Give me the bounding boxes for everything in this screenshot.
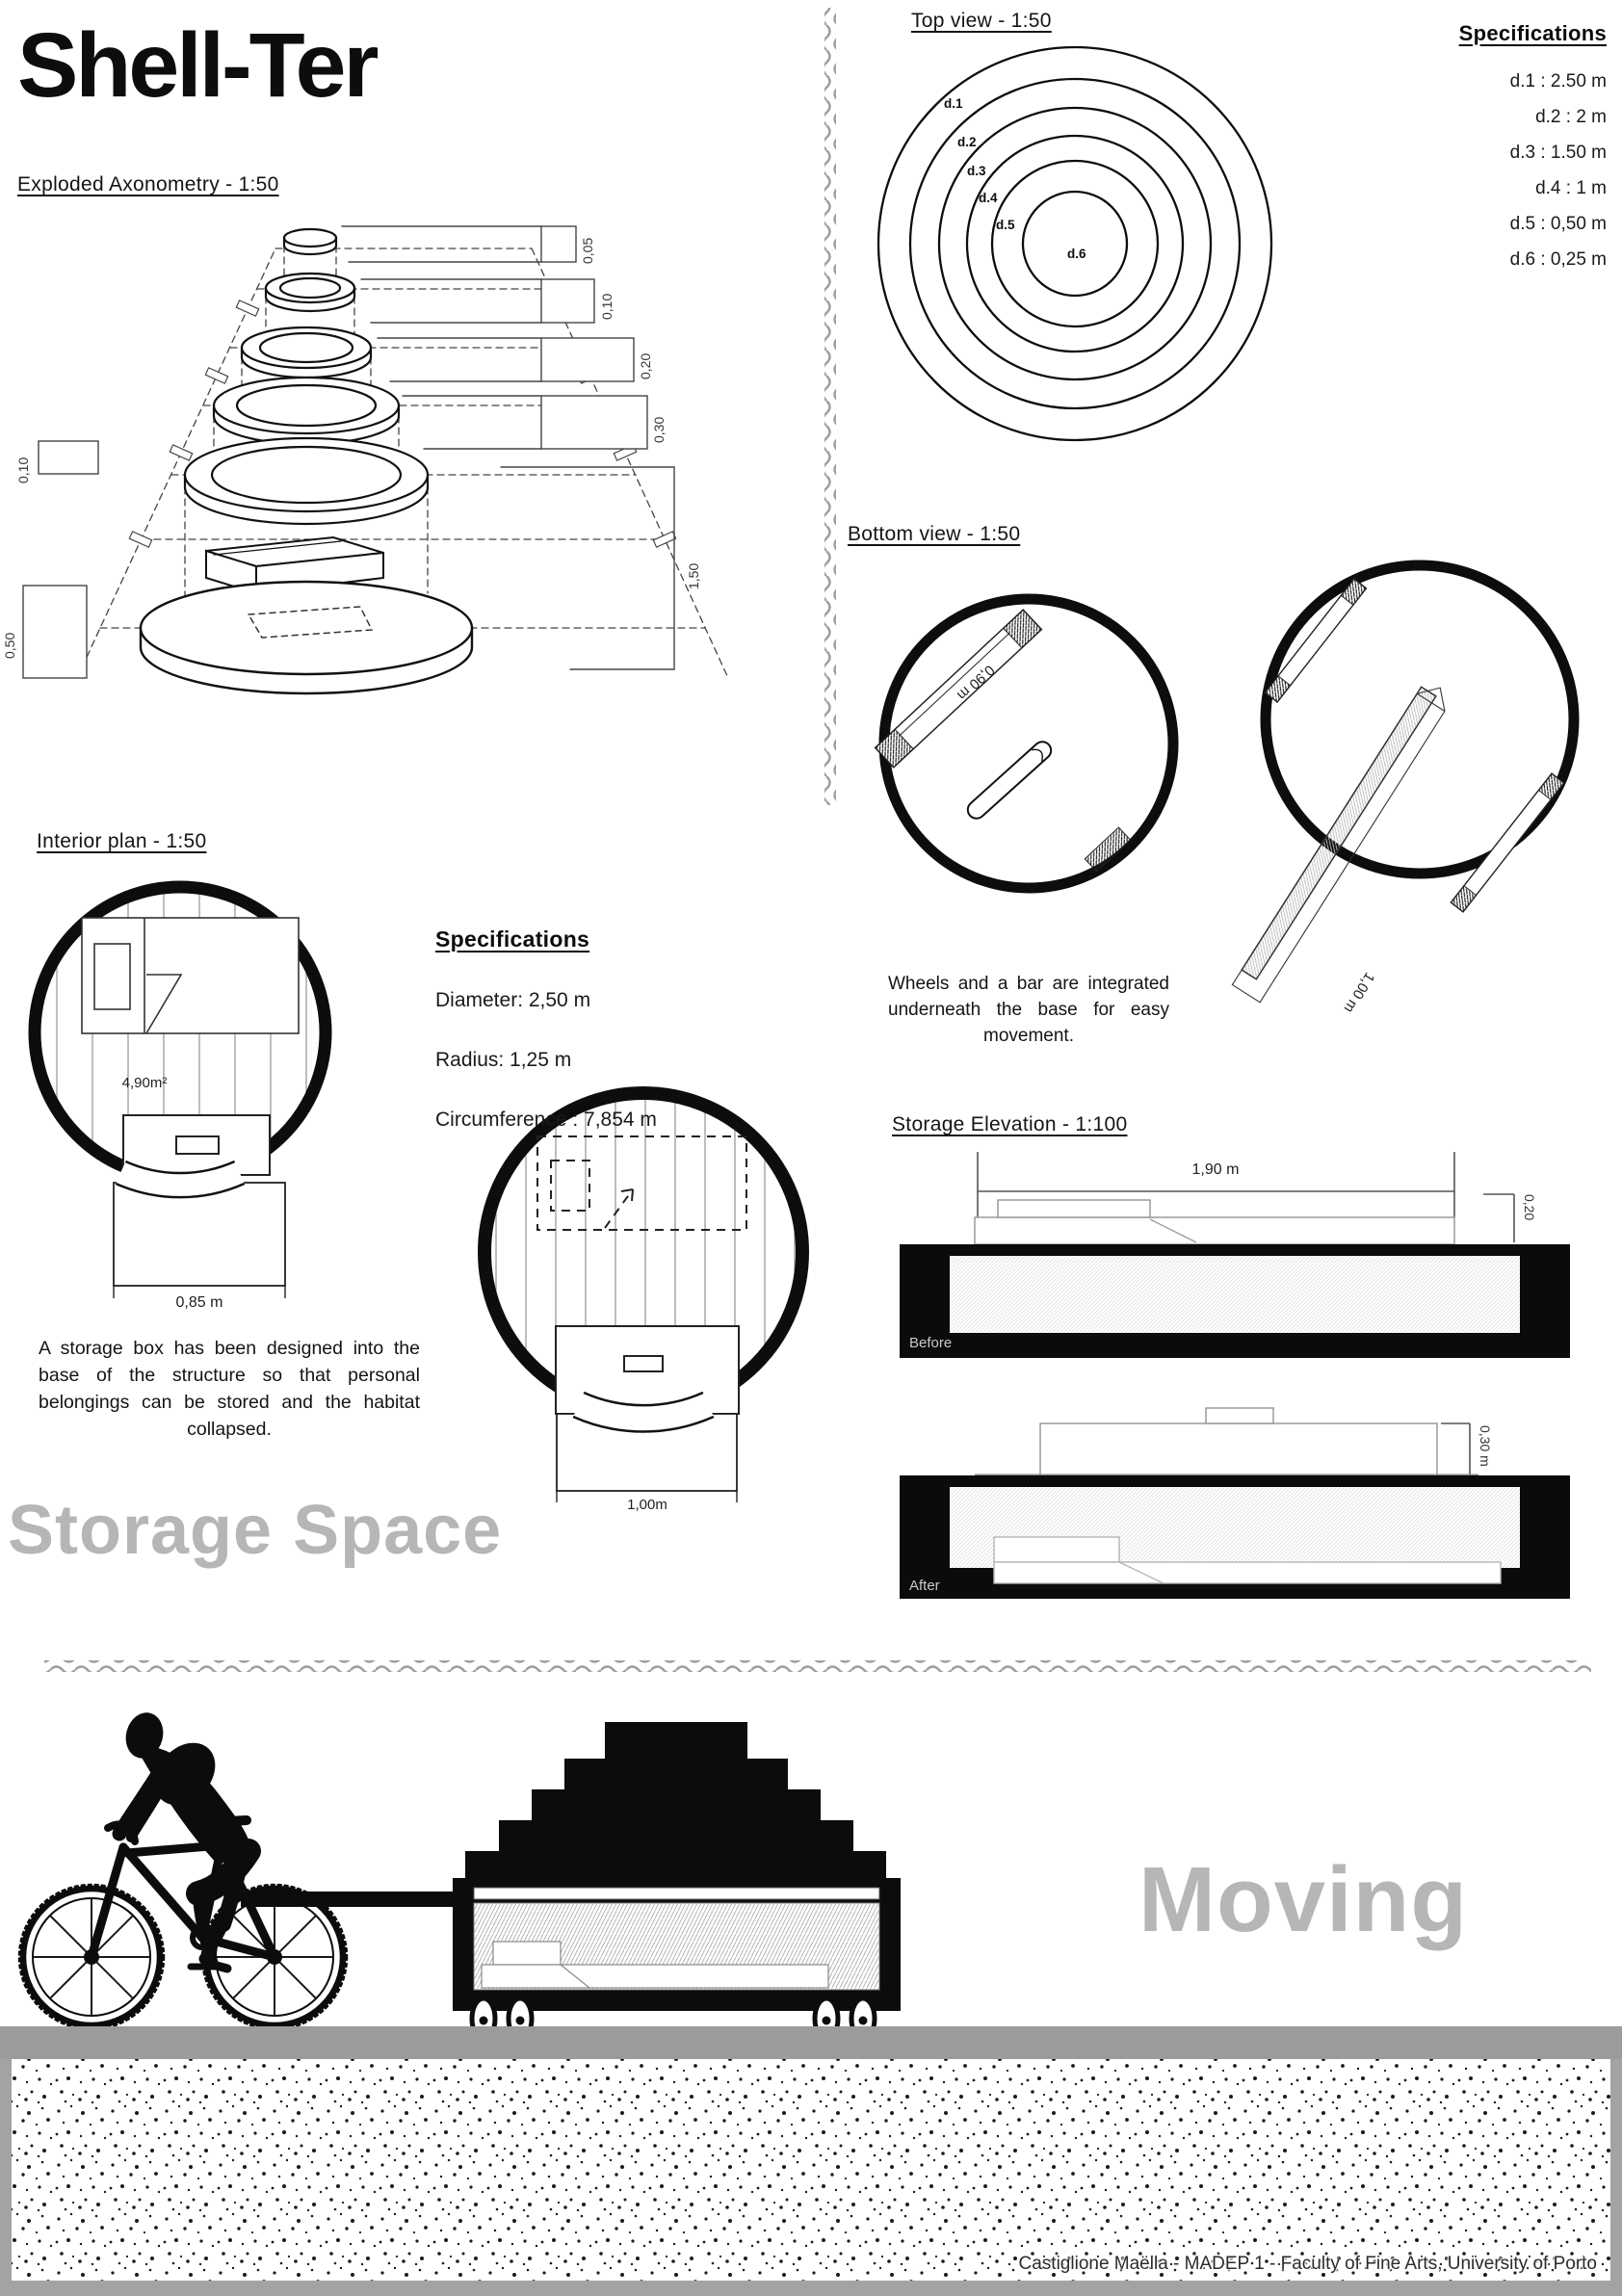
axo-dim-left-0-10: 0,10 xyxy=(15,457,31,483)
ring-label-d3: d.3 xyxy=(967,164,986,178)
axo-dim-0-05: 0,05 xyxy=(580,238,595,264)
footer-credit: Castiglione Maëlla - MADEP 1 - Faculty o… xyxy=(1019,2254,1597,2275)
axo-dim-0-20: 0,20 xyxy=(638,353,653,379)
axo-dim-left-0-50: 0,50 xyxy=(2,633,17,659)
ring-label-d2: d.2 xyxy=(957,135,977,149)
ring-label-d5: d.5 xyxy=(996,218,1015,232)
storage-box-width-right: 1,00m xyxy=(578,1497,717,1513)
interior-plan-circle-a xyxy=(35,884,326,1298)
specifications-middle-heading: Specifications xyxy=(435,926,753,952)
axo-dim-1-50: 1,50 xyxy=(686,563,701,589)
interior-plan-heading: Interior plan - 1:50 xyxy=(37,830,206,853)
moving-label: Moving xyxy=(1138,1847,1468,1953)
specifications-top: Specifications d.1 : 2.50 m d.2 : 2 m d.… xyxy=(1298,21,1607,277)
storage-box-width-left: 0,85 m xyxy=(130,1294,269,1312)
spec-d6: d.6 : 0,25 m xyxy=(1298,242,1607,277)
storage-elevation-before xyxy=(900,1152,1570,1358)
ring-label-d1: d.1 xyxy=(944,96,963,111)
wheels-caption: Wheels and a bar are integrated undernea… xyxy=(888,971,1169,1049)
spec-circumference: Circumference : 7,854 m xyxy=(435,1109,753,1132)
elevation-height-before-label: 0,20 xyxy=(1522,1194,1537,1220)
exploded-axonometry-heading: Exploded Axonometry - 1:50 xyxy=(17,173,279,196)
top-view-heading: Top view - 1:50 xyxy=(911,10,1052,33)
interior-plan-circle-b xyxy=(484,1088,802,1502)
spec-d4: d.4 : 1 m xyxy=(1298,170,1607,206)
elevation-height-after-label: 0,30 m xyxy=(1478,1425,1493,1467)
storage-box-note: A storage box has been designed into the… xyxy=(39,1335,420,1443)
bottom-view-heading: Bottom view - 1:50 xyxy=(848,523,1020,546)
storage-elevation-after xyxy=(900,1408,1570,1599)
horizontal-wavy-divider xyxy=(44,1660,1591,1672)
bicycle-rider-illustration xyxy=(19,1709,347,2029)
spec-d1: d.1 : 2.50 m xyxy=(1298,64,1607,99)
storage-space-label: Storage Space xyxy=(8,1491,502,1570)
after-label: After xyxy=(909,1578,940,1594)
axo-dim-0-30: 0,30 xyxy=(651,417,667,443)
bottom-view-right-circle xyxy=(1232,565,1574,1003)
spec-diameter: Diameter: 2,50 m xyxy=(435,989,753,1012)
specifications-middle: Specifications Diameter: 2,50 m Radius: … xyxy=(435,926,753,1132)
trailer-illustration xyxy=(241,1722,901,2039)
ring-label-d4: d.4 xyxy=(979,191,998,205)
spec-d5: d.5 : 0,50 m xyxy=(1298,206,1607,242)
specifications-top-heading: Specifications xyxy=(1298,21,1607,46)
vertical-wavy-divider xyxy=(824,8,836,805)
page-title: Shell-Ter xyxy=(17,13,376,118)
storage-elevation-heading: Storage Elevation - 1:100 xyxy=(892,1113,1128,1136)
bottom-view-left-circle xyxy=(876,599,1173,888)
axo-dim-0-10: 0,10 xyxy=(599,294,615,320)
spec-d2: d.2 : 2 m xyxy=(1298,99,1607,135)
top-view-drawing xyxy=(878,47,1271,440)
presentation-board: Shell-Ter Exploded Axonometry - 1:50 0,0… xyxy=(0,0,1622,2296)
spec-d3: d.3 : 1.50 m xyxy=(1298,135,1607,170)
before-label: Before xyxy=(909,1335,952,1351)
exploded-axonometry-drawing xyxy=(23,226,728,693)
ring-label-d6: d.6 xyxy=(1067,247,1086,261)
spec-radius: Radius: 1,25 m xyxy=(435,1049,753,1072)
elevation-width-label: 1,90 m xyxy=(1177,1161,1254,1179)
floor-area-label: 4,90m² xyxy=(101,1075,188,1091)
